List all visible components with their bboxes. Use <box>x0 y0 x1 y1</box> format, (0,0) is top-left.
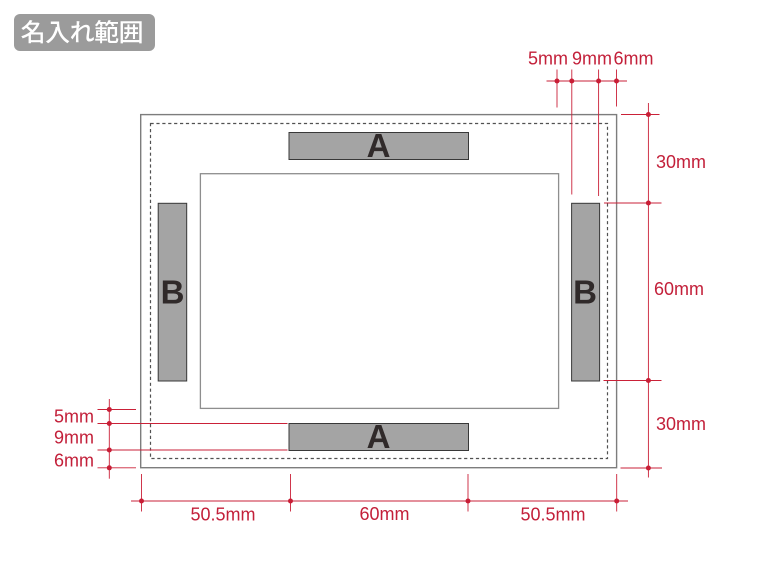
svg-text:30mm: 30mm <box>656 152 706 172</box>
svg-text:9mm: 9mm <box>572 49 612 69</box>
svg-text:50.5mm: 50.5mm <box>520 505 585 525</box>
svg-text:50.5mm: 50.5mm <box>190 505 255 525</box>
svg-text:5mm: 5mm <box>528 49 568 69</box>
svg-text:6mm: 6mm <box>54 451 94 471</box>
svg-text:6mm: 6mm <box>614 49 654 69</box>
svg-text:5mm: 5mm <box>54 407 94 427</box>
svg-text:A: A <box>367 127 391 164</box>
svg-text:60mm: 60mm <box>359 504 409 524</box>
svg-text:A: A <box>367 418 391 455</box>
svg-text:9mm: 9mm <box>54 428 94 448</box>
svg-text:B: B <box>161 274 185 311</box>
svg-text:B: B <box>573 274 597 311</box>
svg-text:60mm: 60mm <box>654 279 704 299</box>
svg-text:30mm: 30mm <box>656 414 706 434</box>
